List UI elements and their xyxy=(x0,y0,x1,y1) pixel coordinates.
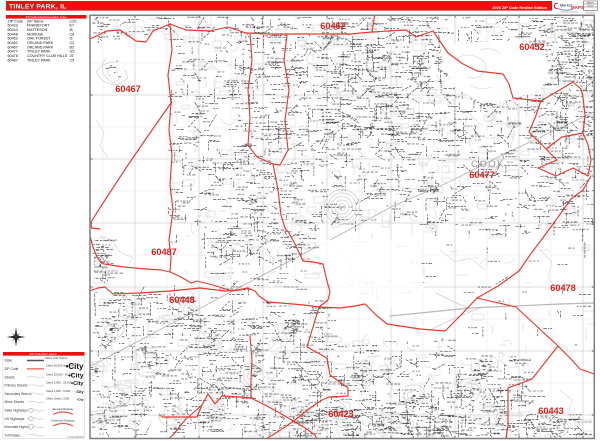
svg-text:Streets: Streets xyxy=(5,375,16,379)
svg-text:Oak Forest: Oak Forest xyxy=(568,33,590,38)
svg-text:COOK: COOK xyxy=(471,159,505,170)
svg-text:State: State xyxy=(5,359,13,363)
svg-text:60478: 60478 xyxy=(550,283,576,293)
svg-text:Primary Streets: Primary Streets xyxy=(5,384,28,388)
svg-text:Cities 5,000 - 25,000: Cities 5,000 - 25,000 xyxy=(46,381,72,385)
svg-text:Know your Territory: Know your Territory xyxy=(560,11,577,14)
svg-text:60467: 60467 xyxy=(115,84,141,94)
svg-text:Cities Under 1,000: Cities Under 1,000 xyxy=(46,397,70,401)
svg-text:•City: •City xyxy=(75,390,83,394)
svg-text:•City: •City xyxy=(68,373,83,380)
svg-text:2026 ZIP Code Redline Edition: 2026 ZIP Code Redline Edition xyxy=(492,6,547,10)
svg-text:Elevated Roadway: Elevated Roadway xyxy=(53,408,75,411)
svg-text:•City: •City xyxy=(71,381,84,387)
svg-text:60452: 60452 xyxy=(519,42,545,52)
svg-text:60423: 60423 xyxy=(328,409,354,419)
svg-text:60462: 60462 xyxy=(320,21,346,31)
svg-text:State Highways: State Highways xyxy=(5,409,28,413)
svg-text:60448: 60448 xyxy=(169,295,195,305)
svg-text:Edition: Edition xyxy=(587,4,593,7)
svg-text:60487: 60487 xyxy=(151,247,177,257)
svg-text:Cities and Towns: Cities and Towns xyxy=(45,356,68,360)
svg-text:60487: 60487 xyxy=(8,58,18,62)
svg-text:ZIP Code Inclusion/Location In: ZIP Code Inclusion/Location Index xyxy=(26,15,68,19)
svg-text:TINLEY PARK, IL: TINLEY PARK, IL xyxy=(9,4,67,11)
svg-text:WILL: WILL xyxy=(235,344,263,355)
svg-text:•City: •City xyxy=(77,397,84,401)
svg-text:C5: C5 xyxy=(70,58,75,62)
svg-text:Tinley Park: Tinley Park xyxy=(417,188,439,193)
svg-text:Toll Roads: Toll Roads xyxy=(5,433,21,437)
svg-text:TINLEY PARK: TINLEY PARK xyxy=(27,58,51,62)
svg-text:MAILED: MAILED xyxy=(587,1,595,4)
svg-text:© MarketMAPS: © MarketMAPS xyxy=(67,436,85,439)
svg-text:Depressed Roadway: Depressed Roadway xyxy=(51,420,75,423)
svg-text:US Highways: US Highways xyxy=(5,417,25,421)
svg-text:Cities 1,000 - 5,000: Cities 1,000 - 5,000 xyxy=(46,389,71,393)
svg-text:Minor Streets: Minor Streets xyxy=(5,400,25,404)
svg-text:•City: •City xyxy=(66,362,84,371)
svg-text:60477: 60477 xyxy=(469,170,495,180)
svg-text:ZIP Code: ZIP Code xyxy=(5,367,19,371)
svg-text:60443: 60443 xyxy=(538,406,564,416)
